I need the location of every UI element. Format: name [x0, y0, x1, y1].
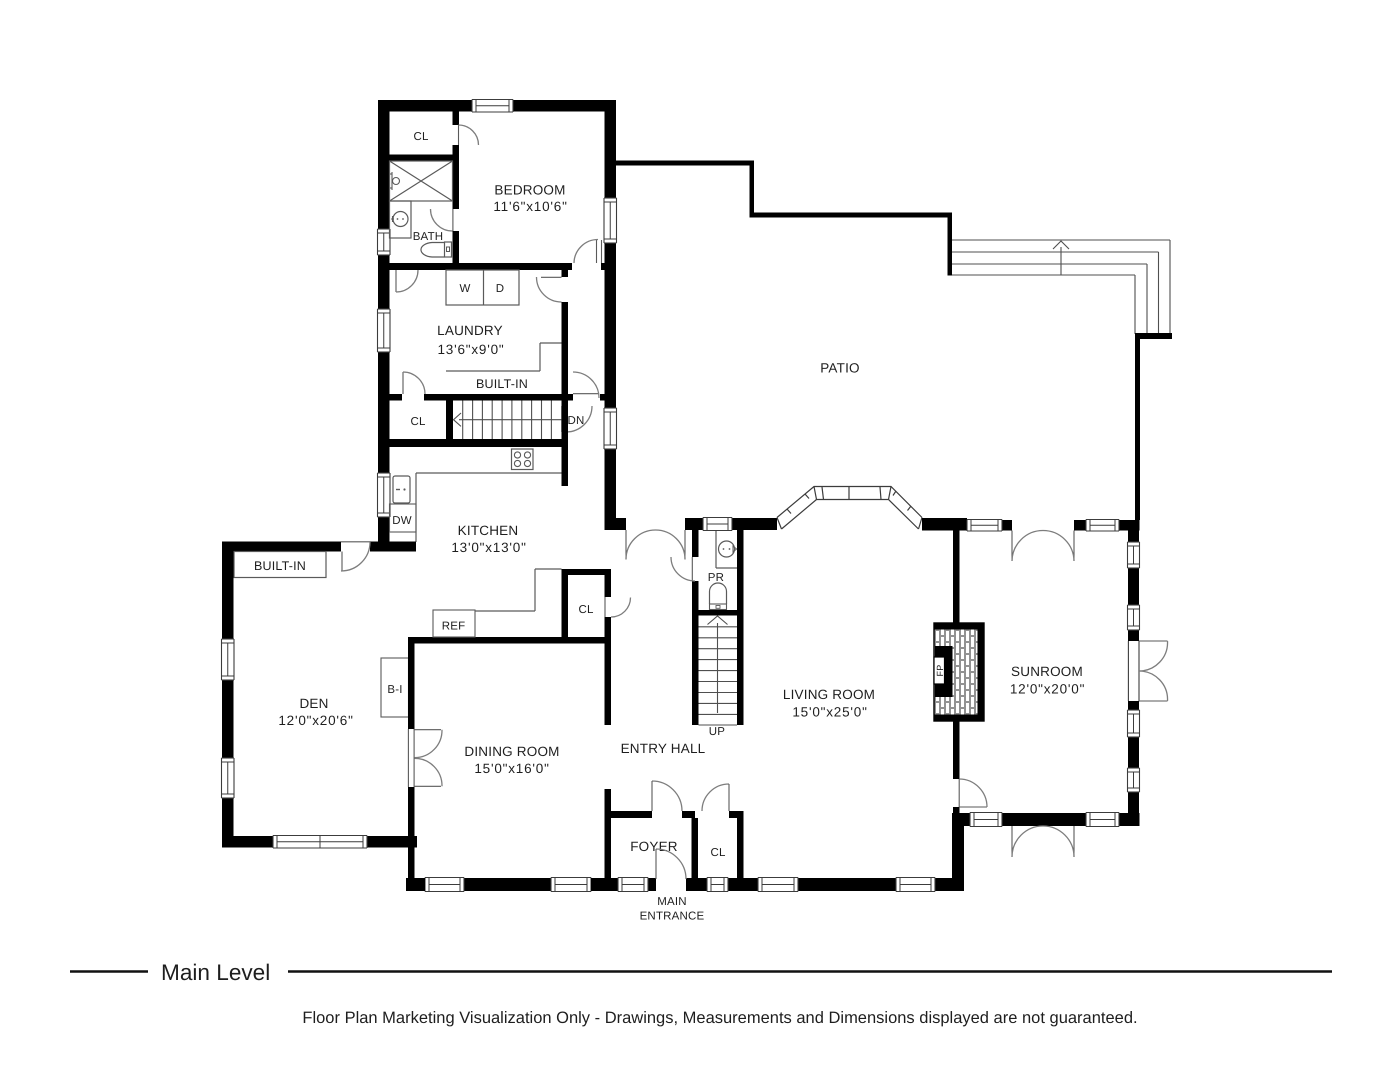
- svg-text:DEN: DEN: [299, 696, 328, 711]
- svg-text:MAIN: MAIN: [657, 896, 687, 908]
- svg-text:PATIO: PATIO: [820, 361, 860, 376]
- svg-text:15'0"x16'0": 15'0"x16'0": [474, 761, 549, 776]
- svg-text:CL: CL: [410, 416, 426, 428]
- svg-text:W: W: [459, 283, 470, 295]
- svg-text:FP: FP: [935, 665, 945, 677]
- svg-text:D: D: [496, 283, 505, 295]
- svg-text:ENTRANCE: ENTRANCE: [640, 911, 705, 923]
- svg-text:13'6"x9'0": 13'6"x9'0": [437, 342, 504, 357]
- svg-text:CL: CL: [578, 604, 594, 616]
- svg-text:B-I: B-I: [387, 684, 402, 696]
- svg-text:BEDROOM: BEDROOM: [494, 183, 565, 198]
- svg-text:UP: UP: [709, 726, 726, 738]
- svg-text:DN: DN: [567, 415, 584, 427]
- svg-text:BUILT-IN: BUILT-IN: [254, 559, 306, 573]
- svg-text:Main Level: Main Level: [161, 960, 270, 985]
- svg-text:LAUNDRY: LAUNDRY: [437, 323, 503, 338]
- svg-text:12'0"x20'6": 12'0"x20'6": [278, 713, 353, 728]
- svg-text:Floor Plan Marketing Visualiza: Floor Plan Marketing Visualization Only …: [302, 1009, 1137, 1027]
- svg-text:DINING ROOM: DINING ROOM: [464, 744, 559, 759]
- svg-text:CL: CL: [710, 847, 726, 859]
- svg-text:12'0"x20'0": 12'0"x20'0": [1010, 682, 1085, 697]
- svg-text:REF: REF: [442, 621, 466, 633]
- svg-text:11'6"x10'6": 11'6"x10'6": [493, 199, 567, 214]
- svg-text:KITCHEN: KITCHEN: [458, 523, 519, 538]
- svg-text:13'0"x13'0": 13'0"x13'0": [451, 540, 526, 555]
- svg-text:BUILT-IN: BUILT-IN: [476, 377, 528, 391]
- svg-text:BATH: BATH: [413, 231, 444, 243]
- svg-text:PR: PR: [708, 572, 724, 584]
- svg-text:LIVING ROOM: LIVING ROOM: [783, 687, 875, 702]
- svg-text:SUNROOM: SUNROOM: [1011, 664, 1083, 679]
- svg-text:DW: DW: [392, 515, 412, 527]
- svg-text:15'0"x25'0": 15'0"x25'0": [792, 705, 867, 720]
- svg-text:FOYER: FOYER: [630, 839, 678, 854]
- svg-text:CL: CL: [413, 131, 429, 143]
- svg-text:ENTRY HALL: ENTRY HALL: [621, 741, 706, 756]
